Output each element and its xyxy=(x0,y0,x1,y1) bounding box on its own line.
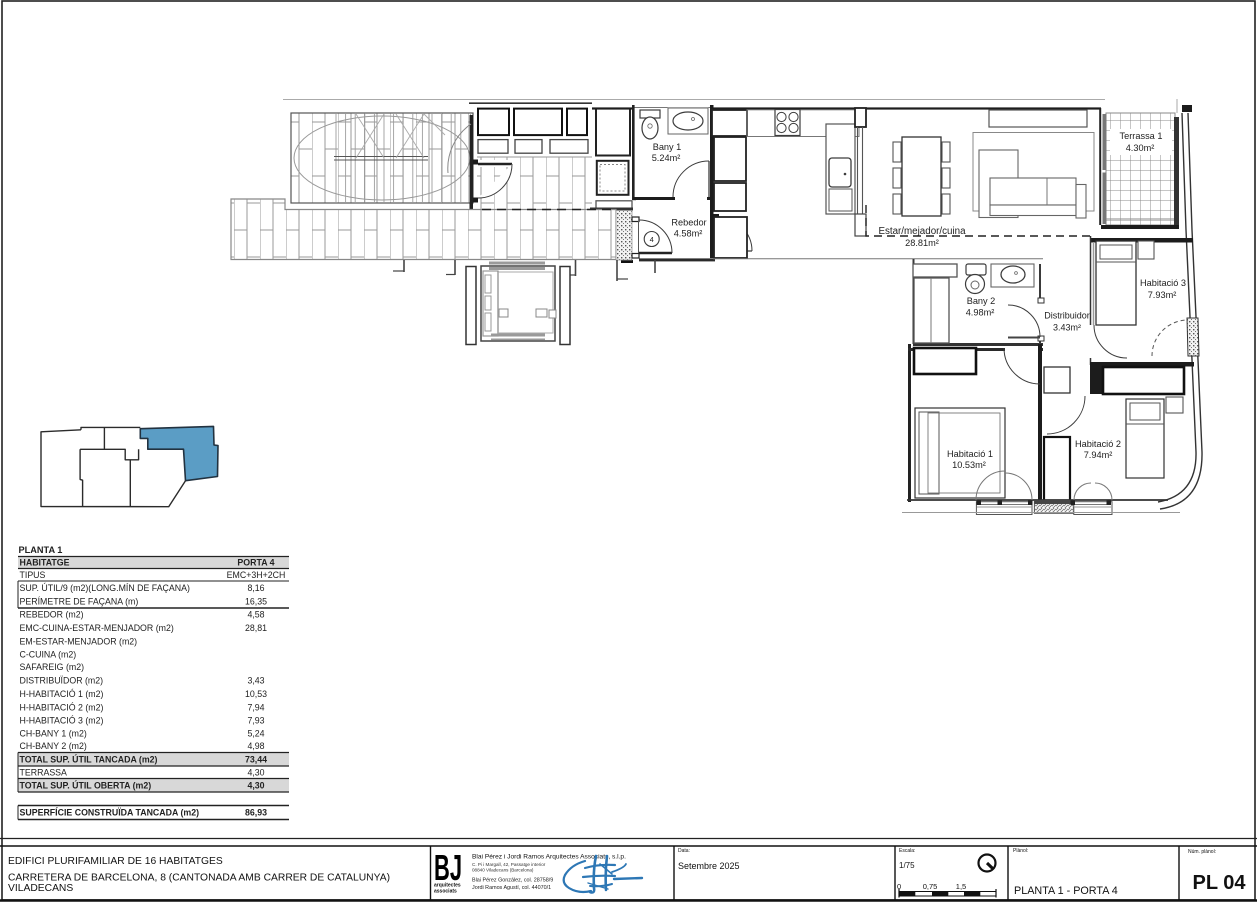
svg-text:28,81: 28,81 xyxy=(245,623,267,633)
svg-text:3,43: 3,43 xyxy=(247,675,264,685)
svg-text:Estar/mejador/cuina: Estar/mejador/cuina xyxy=(878,226,966,237)
svg-text:CARRETERA DE BARCELONA, 8 (CAN: CARRETERA DE BARCELONA, 8 (CANTONADA AMB… xyxy=(8,873,390,884)
svg-text:10.53m²: 10.53m² xyxy=(952,460,986,470)
svg-text:Data:: Data: xyxy=(678,848,690,854)
svg-text:EMC-CUINA-ESTAR-MENJADOR (m2): EMC-CUINA-ESTAR-MENJADOR (m2) xyxy=(20,623,174,633)
svg-text:PERÍMETRE DE FAÇANA (m): PERÍMETRE DE FAÇANA (m) xyxy=(20,596,139,606)
svg-text:VILADECANS: VILADECANS xyxy=(8,883,73,894)
svg-text:3.43m²: 3.43m² xyxy=(1053,323,1081,333)
svg-text:REBEDOR (m2): REBEDOR (m2) xyxy=(20,610,84,620)
svg-text:5.24m²: 5.24m² xyxy=(652,153,681,163)
svg-text:CH-BANY 2 (m2): CH-BANY 2 (m2) xyxy=(20,741,87,751)
svg-text:Blai Pérez i Jordi Ramos Arqui: Blai Pérez i Jordi Ramos Arquitectes Ass… xyxy=(472,854,626,861)
svg-text:HABITATGE: HABITATGE xyxy=(20,558,70,568)
svg-text:EM-ESTAR-MENJADOR (m2): EM-ESTAR-MENJADOR (m2) xyxy=(20,636,138,646)
svg-text:10,53: 10,53 xyxy=(245,689,267,699)
svg-text:4,98: 4,98 xyxy=(247,741,264,751)
svg-text:C. Pi i Margall, 42, Passatge: C. Pi i Margall, 42, Passatge interior xyxy=(472,862,546,867)
svg-text:0,75: 0,75 xyxy=(923,882,938,891)
svg-text:TOTAL SUP. ÚTIL OBERTA (m2): TOTAL SUP. ÚTIL OBERTA (m2) xyxy=(20,779,152,790)
svg-text:CH-BANY 1 (m2): CH-BANY 1 (m2) xyxy=(20,728,87,738)
svg-text:28.81m²: 28.81m² xyxy=(905,238,939,248)
svg-text:H-HABITACIÓ 2 (m2): H-HABITACIÓ 2 (m2) xyxy=(20,702,104,712)
svg-text:Bany 1: Bany 1 xyxy=(653,142,682,152)
svg-text:C-CUINA (m2): C-CUINA (m2) xyxy=(20,649,77,659)
svg-text:SUPERFÍCIE CONSTRUÏDA TANCADA: SUPERFÍCIE CONSTRUÏDA TANCADA (m2) xyxy=(20,808,200,818)
svg-text:7.93m²: 7.93m² xyxy=(1148,290,1177,300)
svg-text:73,44: 73,44 xyxy=(245,754,267,764)
svg-text:7,93: 7,93 xyxy=(247,716,264,726)
svg-text:4,30: 4,30 xyxy=(247,767,264,777)
svg-text:16,35: 16,35 xyxy=(245,596,267,606)
svg-text:Terrassa 1: Terrassa 1 xyxy=(1120,131,1163,141)
svg-text:DISTRIBUÏDOR (m2): DISTRIBUÏDOR (m2) xyxy=(20,675,104,685)
svg-text:TOTAL SUP. ÚTIL TANCADA (m2): TOTAL SUP. ÚTIL TANCADA (m2) xyxy=(20,753,158,764)
svg-text:PL 04: PL 04 xyxy=(1193,872,1247,894)
svg-text:Blai Pérez González, col. 2875: Blai Pérez González, col. 28758/9 xyxy=(472,878,553,884)
svg-text:Rebedor: Rebedor xyxy=(671,217,706,227)
svg-text:Habitació 2: Habitació 2 xyxy=(1075,439,1121,449)
svg-text:4.30m²: 4.30m² xyxy=(1126,143,1155,153)
svg-text:86,93: 86,93 xyxy=(245,808,267,818)
svg-text:7,94: 7,94 xyxy=(247,702,264,712)
svg-text:1,5: 1,5 xyxy=(956,882,966,891)
svg-text:SUP. ÚTIL/9 (m2)(LONG.MÍN DE F: SUP. ÚTIL/9 (m2)(LONG.MÍN DE FAÇANA) xyxy=(20,583,190,593)
svg-text:1/75: 1/75 xyxy=(899,861,915,870)
svg-text:SAFAREIG (m2): SAFAREIG (m2) xyxy=(20,662,85,672)
svg-text:TERRASSA: TERRASSA xyxy=(20,767,68,777)
svg-text:Escala:: Escala: xyxy=(899,848,915,854)
svg-text:PORTA 4: PORTA 4 xyxy=(237,558,274,568)
svg-text:Núm. plànol:: Núm. plànol: xyxy=(1188,849,1216,855)
svg-text:4,58: 4,58 xyxy=(247,610,264,620)
svg-text:Bany 2: Bany 2 xyxy=(967,296,996,306)
svg-text:08840 Viladecans (Barcelona): 08840 Viladecans (Barcelona) xyxy=(472,868,534,873)
svg-text:5,24: 5,24 xyxy=(247,728,264,738)
svg-text:PLANTA 1 - PORTA 4: PLANTA 1 - PORTA 4 xyxy=(1014,885,1118,897)
svg-text:4,30: 4,30 xyxy=(247,780,264,790)
svg-text:4: 4 xyxy=(650,235,654,244)
svg-text:PLANTA 1: PLANTA 1 xyxy=(19,545,63,555)
svg-text:H-HABITACIÓ 1 (m2): H-HABITACIÓ 1 (m2) xyxy=(20,689,104,699)
svg-text:Habitació 1: Habitació 1 xyxy=(947,449,993,459)
svg-text:Plànol:: Plànol: xyxy=(1013,848,1028,854)
svg-text:EMC+3H+2CH: EMC+3H+2CH xyxy=(227,570,286,580)
svg-text:Setembre 2025: Setembre 2025 xyxy=(678,861,740,871)
svg-text:4.98m²: 4.98m² xyxy=(966,308,995,318)
svg-text:TIPUS: TIPUS xyxy=(20,570,46,580)
svg-text:Distribuidor: Distribuidor xyxy=(1044,311,1090,321)
svg-text:H-HABITACIÓ 3 (m2): H-HABITACIÓ 3 (m2) xyxy=(20,716,104,726)
svg-text:associats: associats xyxy=(434,889,457,895)
svg-text:4.58m²: 4.58m² xyxy=(674,229,703,239)
svg-text:Habitació 3: Habitació 3 xyxy=(1140,278,1186,288)
svg-text:7.94m²: 7.94m² xyxy=(1084,450,1113,460)
svg-text:Jordi Ramos Agustí, col. 44070: Jordi Ramos Agustí, col. 44070/1 xyxy=(472,885,551,891)
svg-text:8,16: 8,16 xyxy=(247,583,264,593)
svg-text:EDIFICI PLURIFAMILIAR DE 16 HA: EDIFICI PLURIFAMILIAR DE 16 HABITATGES xyxy=(8,856,223,867)
